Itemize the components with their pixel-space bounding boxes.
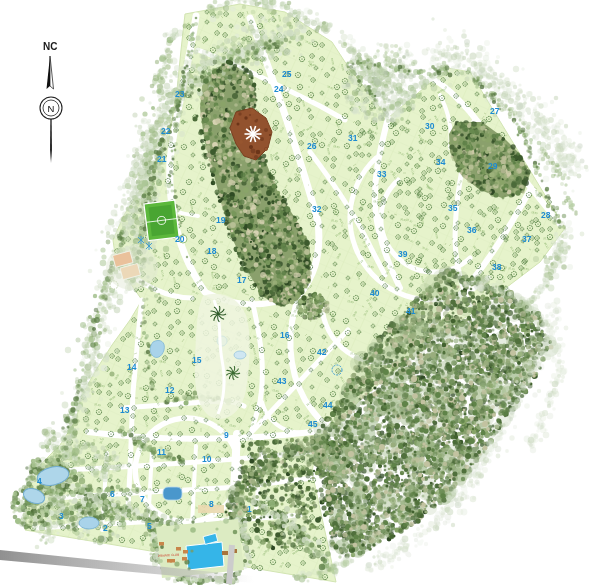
svg-text:41: 41 xyxy=(406,306,416,316)
svg-text:45: 45 xyxy=(308,419,318,429)
svg-text:5: 5 xyxy=(147,521,152,531)
svg-text:26: 26 xyxy=(307,141,317,151)
svg-text:18: 18 xyxy=(207,246,217,256)
svg-text:17: 17 xyxy=(237,275,247,285)
svg-text:34: 34 xyxy=(436,157,446,167)
svg-text:20: 20 xyxy=(175,234,185,244)
svg-text:37: 37 xyxy=(522,234,532,244)
svg-text:4: 4 xyxy=(37,476,42,486)
svg-text:12: 12 xyxy=(165,385,175,395)
svg-text:11: 11 xyxy=(157,447,166,457)
svg-text:16: 16 xyxy=(280,330,290,340)
svg-text:30: 30 xyxy=(425,121,435,131)
svg-text:43: 43 xyxy=(277,376,287,386)
svg-text:42: 42 xyxy=(317,347,327,357)
svg-text:NC: NC xyxy=(43,41,57,52)
svg-text:36: 36 xyxy=(467,225,477,235)
svg-text:38: 38 xyxy=(492,262,502,272)
svg-text:24: 24 xyxy=(274,84,284,94)
svg-text:31: 31 xyxy=(348,133,358,143)
svg-text:15: 15 xyxy=(192,355,202,365)
svg-text:27: 27 xyxy=(490,106,500,116)
svg-text:29: 29 xyxy=(488,161,498,171)
svg-text:8: 8 xyxy=(209,499,214,509)
svg-text:32: 32 xyxy=(312,204,322,214)
svg-text:10: 10 xyxy=(202,454,212,464)
svg-text:35: 35 xyxy=(448,203,458,213)
svg-text:22: 22 xyxy=(161,126,171,136)
svg-text:39: 39 xyxy=(398,249,408,259)
svg-text:40: 40 xyxy=(370,288,380,298)
svg-text:14: 14 xyxy=(127,362,137,372)
svg-text:N: N xyxy=(48,103,55,114)
svg-text:25: 25 xyxy=(282,69,292,79)
svg-text:28: 28 xyxy=(541,210,551,220)
svg-text:19: 19 xyxy=(216,215,226,225)
svg-text:9: 9 xyxy=(224,430,229,440)
svg-text:13: 13 xyxy=(120,405,130,415)
svg-text:6: 6 xyxy=(110,489,115,499)
svg-text:33: 33 xyxy=(377,169,387,179)
svg-text:23: 23 xyxy=(175,89,185,99)
svg-text:2: 2 xyxy=(103,523,108,533)
svg-text:7: 7 xyxy=(140,494,145,504)
svg-text:3: 3 xyxy=(59,511,64,521)
svg-text:21: 21 xyxy=(157,154,167,164)
svg-text:1: 1 xyxy=(247,504,252,514)
svg-text:44: 44 xyxy=(323,400,333,410)
